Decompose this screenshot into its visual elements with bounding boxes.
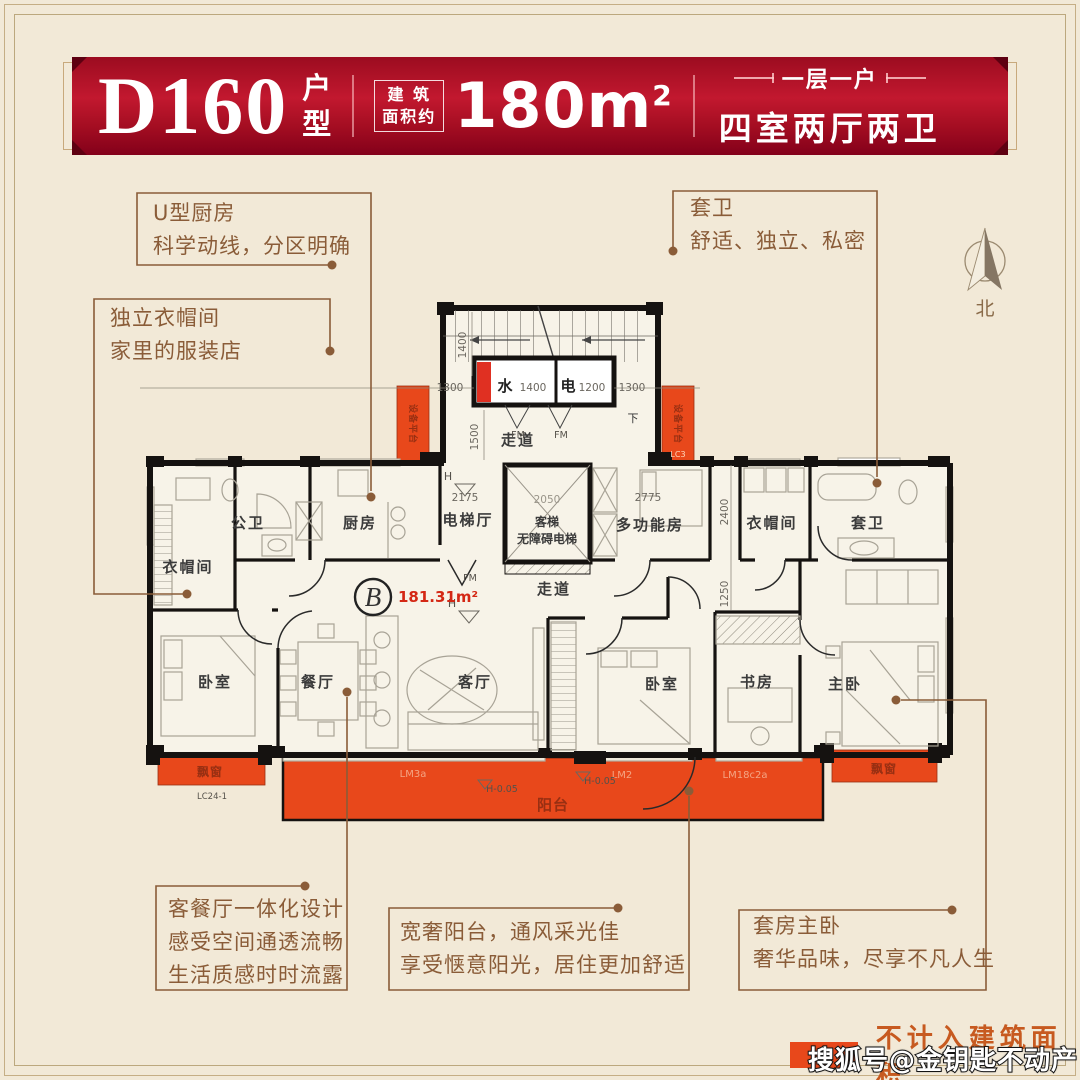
room-lift-hall: 电梯厅 [442, 511, 493, 529]
mark-fm2: FM [554, 430, 568, 441]
poster-page: D160 户 型 建 筑 面积约 180m2 一层一户 四室两厅两卫 [0, 0, 1080, 1080]
dim-2175: 2175 [452, 492, 479, 504]
label-bay-left: 飘窗 [197, 764, 223, 779]
dim-1300-right: 1300 [619, 382, 646, 394]
room-corridor-mid: 走道 [537, 580, 571, 598]
compass-icon: 北 [965, 228, 1005, 320]
label-equip-right: 设备平台 [672, 404, 684, 444]
mark-lm18c2a: LM18c2a [723, 770, 768, 781]
dim-elec: 1200 [579, 382, 606, 394]
compass-north-label: 北 [975, 298, 994, 320]
label-water-shaft: 水 [497, 377, 513, 395]
room-dining: 餐厅 [301, 673, 335, 691]
mark-fm3: FM [463, 573, 477, 584]
label-stairs-down: 下 [628, 412, 639, 425]
mark-lm3a: LM3a [400, 769, 427, 780]
room-master: 主卧 [828, 675, 862, 693]
room-suite-bath: 套卫 [850, 514, 885, 532]
mark-h005a: H-0.05 [486, 784, 518, 795]
dim-1300-left: 1300 [437, 382, 464, 394]
room-study: 书房 [740, 673, 774, 691]
callout-balcony: 宽奢阳台，通风采光佳 享受惬意阳光，居住更加舒适 [400, 916, 686, 982]
room-kitchen: 厨房 [343, 514, 377, 532]
callout-suite-bath: 套卫 舒适、独立、私密 [690, 192, 866, 258]
mark-h1: H [444, 470, 452, 483]
label-balcony: 阳台 [537, 796, 569, 814]
mark-fm1: FM [511, 430, 525, 441]
callout-kitchen: U型厨房 科学动线，分区明确 [153, 197, 351, 263]
mark-lc24: LC24-1 [197, 792, 227, 802]
dim-1250: 1250 [719, 581, 731, 608]
room-bedroom-left: 卧室 [198, 673, 232, 691]
callout-master: 套房主卧 奢华品味，尽享不凡人生 [753, 910, 995, 976]
label-elec-shaft: 电 [560, 377, 575, 395]
label-bay-right: 飘窗 [871, 761, 897, 776]
mark-h005b: H-0.05 [584, 776, 616, 787]
unit-area-text: 181.31m² [398, 588, 478, 606]
room-multi: 多功能房 [616, 516, 684, 534]
room-cloak-left: 衣帽间 [162, 558, 213, 576]
room-cloak-right: 衣帽间 [746, 514, 797, 532]
unit-letter: B [365, 582, 382, 612]
dim-2400: 2400 [719, 499, 731, 526]
room-bedroom-mid: 卧室 [645, 675, 679, 693]
watermark: 搜狐号@金钥匙不动产 [808, 1040, 1078, 1077]
mark-lc3: LC3 [670, 450, 685, 459]
callout-cloakroom: 独立衣帽间 家里的服装店 [110, 302, 242, 368]
label-equip-left: 设备平台 [407, 404, 419, 444]
dim-2775: 2775 [635, 492, 662, 504]
dim-water: 1400 [520, 382, 547, 394]
dim-1500: 1500 [469, 424, 481, 451]
room-living: 客厅 [457, 673, 492, 691]
dim-2050: 2050 [534, 494, 561, 506]
fire-hydrant [477, 362, 491, 402]
elevator-shaft [505, 465, 590, 562]
callout-living-dining: 客餐厅一体化设计 感受空间通透流畅 生活质感时时流露 [168, 893, 344, 992]
room-lift1: 客梯 [534, 514, 559, 529]
room-pub-bath: 公卫 [231, 514, 265, 532]
room-lift2: 无障碍电梯 [516, 531, 577, 546]
dim-1400: 1400 [457, 332, 469, 359]
